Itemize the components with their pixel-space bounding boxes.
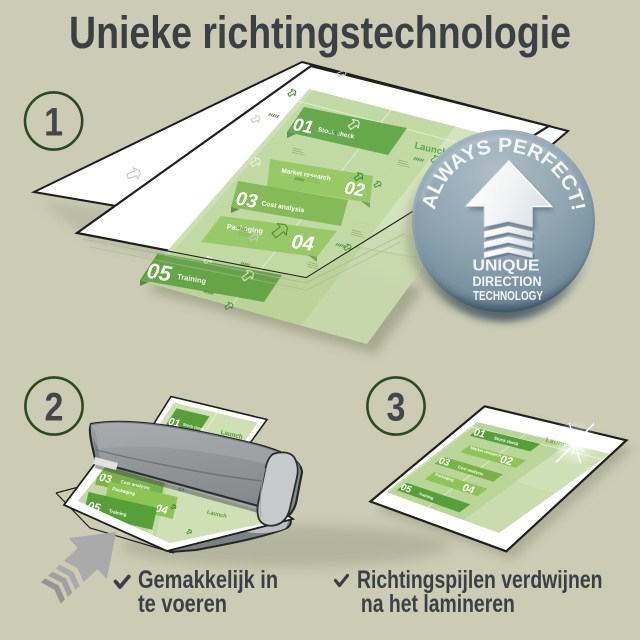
svg-text:TECHNOLOGY: TECHNOLOGY: [473, 288, 543, 303]
svg-text:UNIQUE: UNIQUE: [473, 258, 540, 275]
svg-text:1: 1: [44, 99, 63, 144]
svg-text:3: 3: [387, 384, 406, 429]
svg-text:2: 2: [45, 384, 64, 429]
